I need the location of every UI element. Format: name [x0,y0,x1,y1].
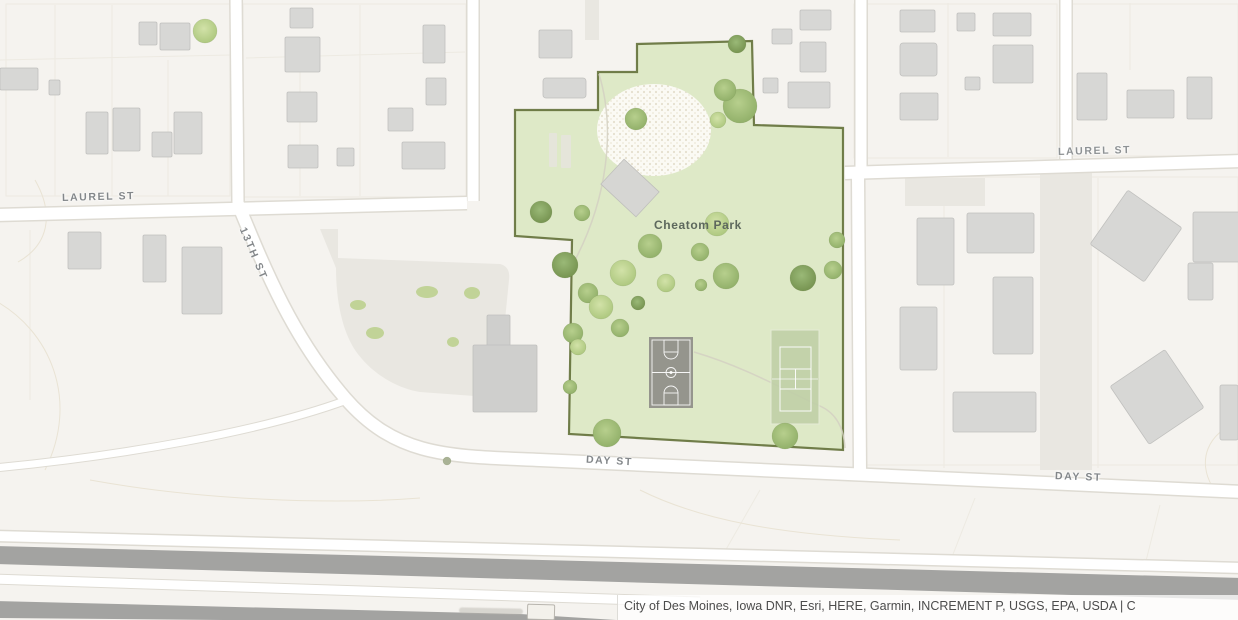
road-13th-st-north [236,0,238,204]
road-east-of-park [858,175,860,472]
park-name-label: Cheatom Park [654,219,742,231]
street-label-laurel-st-left: LAUREL ST [62,191,135,203]
street-label-day-st-right: DAY ST [1055,471,1102,483]
playground-area [597,84,711,176]
basketball-court [649,337,693,408]
tennis-court [771,330,819,424]
route-shield-icon [527,604,555,620]
map-attribution: City of Des Moines, Iowa DNR, Esri, HERE… [617,595,1238,620]
map-canvas[interactable]: LAUREL ST LAUREL ST 13TH ST DAY ST DAY S… [0,0,1238,620]
street-label-day-st-left: DAY ST [586,455,633,468]
basemap-layer [0,0,1238,620]
street-label-laurel-st-right: LAUREL ST [1058,145,1131,157]
